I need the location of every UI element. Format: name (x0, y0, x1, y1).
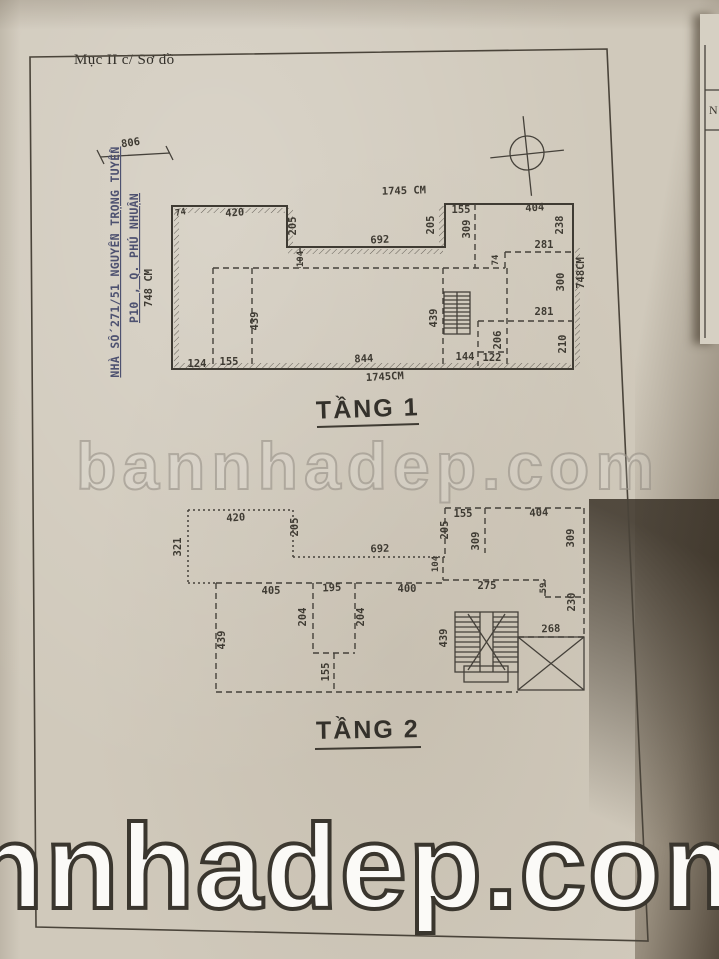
dimension-label: 404 (525, 201, 545, 214)
floor2-title-underline (315, 747, 421, 749)
floor1-walls (172, 204, 580, 369)
dimension-label: 155 (454, 508, 473, 520)
dimension-label: 268 (541, 623, 560, 636)
dimension-label: 1745 CM (382, 184, 427, 198)
floor2-stairs (455, 612, 518, 682)
dimension-label: 238 (554, 216, 566, 235)
dimension-label: 74 (491, 254, 501, 265)
dimension-label: 155 (320, 663, 332, 682)
dimension-label: 321 (172, 538, 184, 557)
dimension-label: 205 (287, 217, 299, 236)
dimension-label: 204 (297, 608, 309, 627)
dimension-label: 204 (355, 608, 367, 627)
dimension-label: 806 (120, 136, 140, 151)
dimension-label: 1745CM (366, 370, 405, 384)
adjacent-page-lines: N (705, 45, 719, 338)
dimension-label: 59 (539, 583, 549, 594)
dimension-label: 155 (452, 204, 471, 216)
dimension-label: 439 (438, 629, 450, 648)
dimension-label: 309 (470, 532, 482, 551)
house-address-line1: NHÀ SỐ 271/51 NGUYỄN TRỌNG TUYỂN (107, 146, 122, 377)
document-photo: Mục II c/ Sơ đồ N NHÀ SỐ 271/51 NGUYỄN T… (0, 0, 719, 959)
dimension-label: 309 (461, 220, 473, 239)
dimension-label: 439 (216, 631, 228, 650)
floor2-dimension-labels: 4203212056921041552053094043092755923040… (172, 507, 578, 682)
dimension-label: 144 (456, 351, 475, 363)
dimension-label: 205 (425, 216, 437, 235)
dimension-label: 748CM (575, 257, 587, 289)
floor1-plan: 7442020569210420515530940423828174300439… (120, 136, 587, 427)
dimension-label: 405 (262, 585, 281, 597)
floor1-dimension-labels: 7442020569210420515530940423828174300439… (120, 136, 587, 384)
dimension-label: 205 (289, 518, 301, 537)
dimension-label: 309 (565, 529, 577, 548)
dimension-label: 206 (492, 331, 504, 350)
dimension-label: 230 (566, 593, 578, 612)
floor1-title: TẦNG 1 (315, 392, 420, 425)
dimension-label: 439 (428, 309, 440, 328)
dimension-label: 275 (478, 580, 497, 592)
floor2-plan: 4203212056921041552053094043092755923040… (172, 507, 584, 749)
dimension-label: 692 (370, 543, 389, 556)
dimension-label: 420 (226, 511, 246, 524)
dimension-label: 748 CM (143, 269, 155, 307)
dimension-label: 124 (188, 358, 207, 370)
dimension-label: 195 (322, 582, 342, 595)
watermark-middle: bannhadep.com (76, 428, 660, 504)
dimension-label: 210 (557, 335, 569, 354)
dimension-label: 439 (249, 312, 261, 331)
floor2-void-x-box (518, 637, 584, 690)
floor1-title-underline (317, 424, 419, 427)
dimension-label: 400 (398, 583, 417, 595)
dimension-label: 205 (439, 521, 451, 540)
dimension-label: 122 (483, 352, 502, 364)
watermark-bottom: nnhadep.com (0, 798, 719, 936)
dimension-label: 281 (535, 306, 554, 318)
floor2-partitions (216, 508, 584, 692)
floor1-stairs (444, 292, 470, 334)
dimension-label: 281 (535, 239, 554, 251)
dimension-label: 104 (296, 250, 306, 267)
dimension-label: 300 (555, 273, 567, 292)
dimension-label: 104 (431, 555, 441, 572)
house-address-line2: P10 , Q. PHÚ NHUẬN (126, 193, 141, 323)
north-compass-icon (486, 112, 568, 199)
dimension-label: 844 (354, 353, 374, 366)
dimension-label: 155 (220, 356, 239, 368)
floor2-title: TẦNG 2 (316, 714, 420, 745)
adjacent-page-text: N (709, 103, 718, 117)
floor1-partitions (213, 204, 573, 366)
dimension-label: 420 (225, 206, 245, 219)
dimension-label: 692 (370, 234, 390, 247)
dimension-label: 404 (529, 507, 549, 520)
